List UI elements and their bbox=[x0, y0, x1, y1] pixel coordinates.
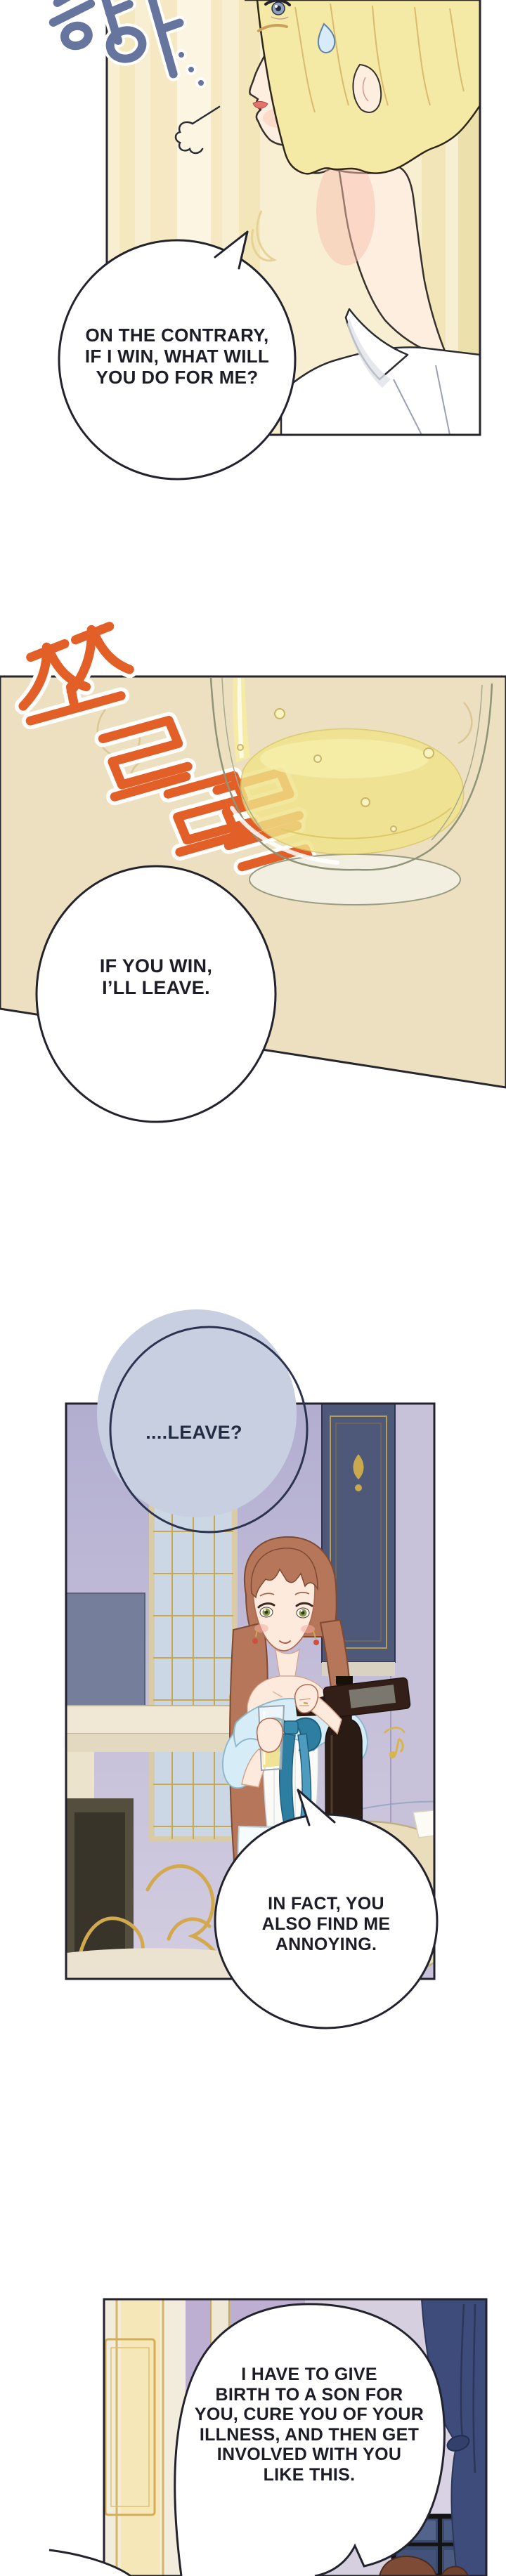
bubble2-text: IF YOU WIN, I’LL LEAVE. bbox=[51, 955, 261, 1000]
bubble1-text: ON THE CONTRARY, IF I WIN, WHAT WILL YOU… bbox=[58, 325, 297, 388]
hand-on-glass bbox=[257, 1718, 283, 1752]
neck bbox=[275, 1649, 299, 1676]
bubble3-text: ....LEAVE? bbox=[89, 1422, 299, 1444]
floor bbox=[66, 1948, 239, 1979]
paper-sheet bbox=[413, 1807, 472, 1838]
bubble5-text: I HAVE TO GIVE BIRTH TO A SON FOR YOU, C… bbox=[176, 2365, 443, 2485]
bubble4-text: IN FACT, YOU ALSO FIND ME ANNOYING. bbox=[221, 1894, 432, 1955]
webtoon-page: ON THE CONTRARY, IF I WIN, WHAT WILL YOU… bbox=[0, 0, 506, 2576]
